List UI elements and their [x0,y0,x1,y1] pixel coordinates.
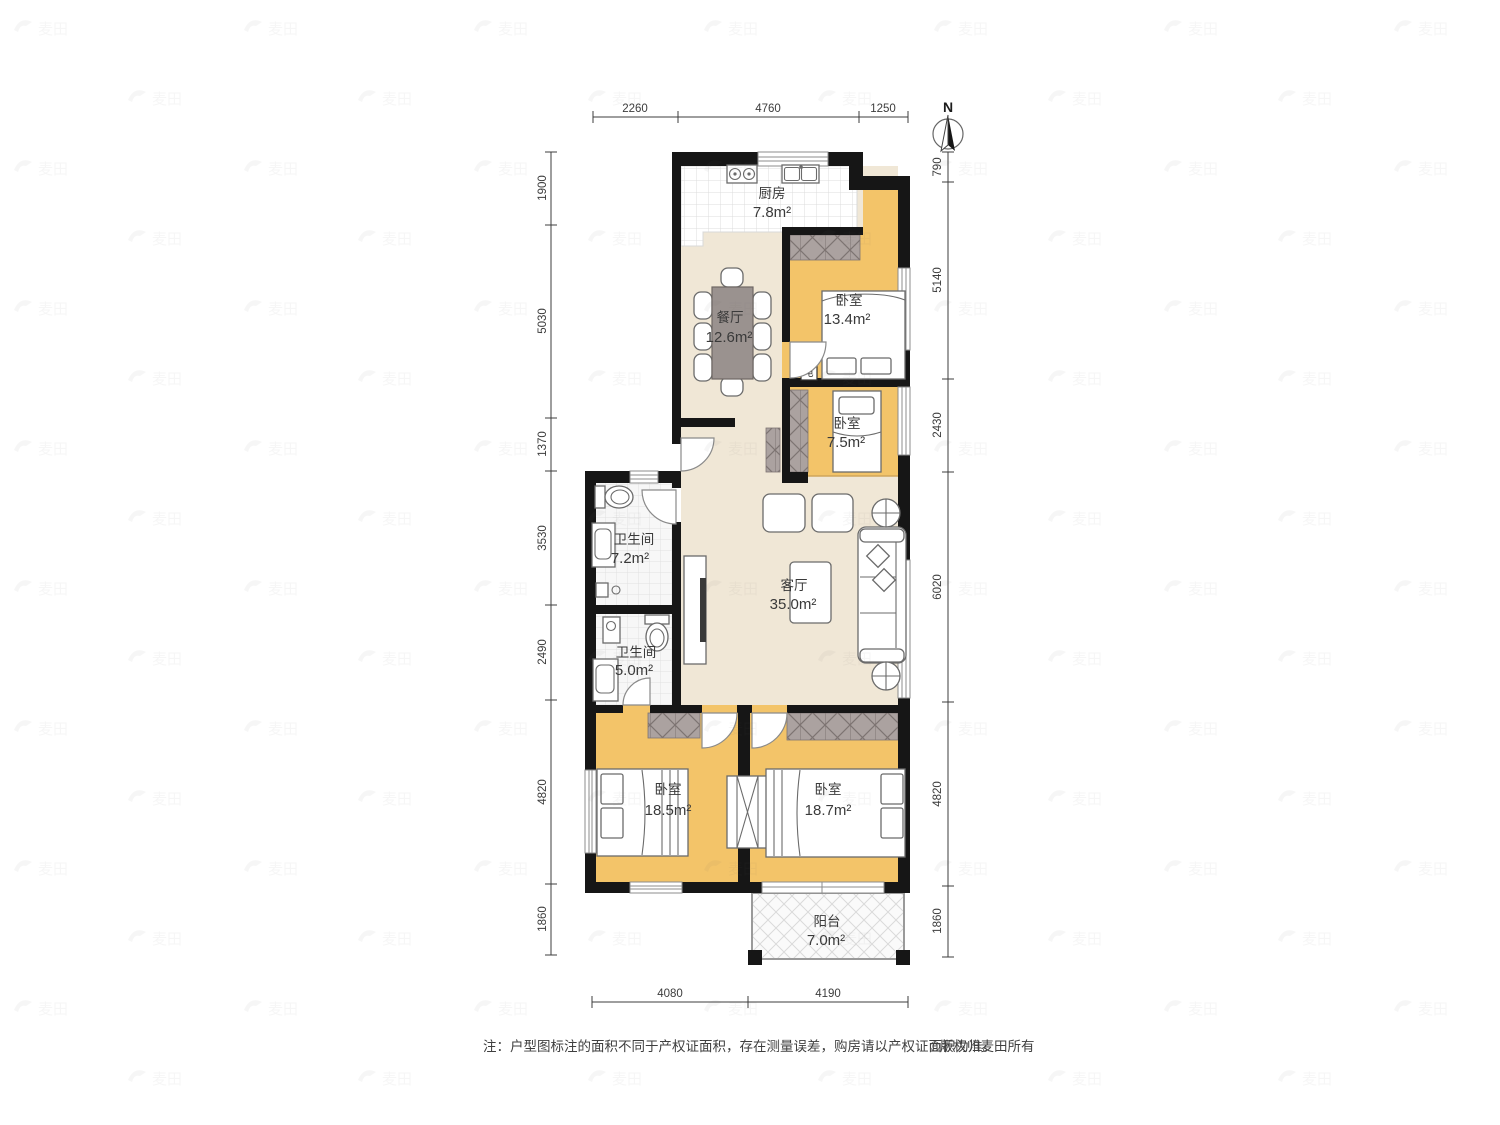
dresser-icon [727,776,768,848]
dim-label: 4080 [657,988,683,1000]
double-bed-icon [822,291,905,379]
tv-icon [700,578,706,642]
dim-label: 5030 [537,308,549,334]
room-balcony-label: 阳台 [814,914,841,929]
kitchen-sink-icon [782,165,819,183]
room-kitchen-area: 7.8m² [753,204,791,221]
window-icon [630,471,658,483]
room-kitchen-label: 厨房 [759,186,786,201]
room-bedroom-top-area: 13.4m² [824,311,871,328]
dim-label: 6020 [932,574,944,600]
room-bath-large-area: 7.2m² [611,550,649,567]
room-bedroom-top-label: 卧室 [836,292,863,308]
disclaimer-note: 注：户型图标注的面积不同于产权证面积，存在测量误差，购房请以产权证面积为准。 [483,1038,996,1054]
dim-label: 1860 [537,906,549,932]
sliding-door-icon [762,882,884,893]
tv-cabinet-icon [684,556,706,664]
dim-label: 1900 [537,175,549,201]
room-bedroom-small-label: 卧室 [834,415,861,431]
sofa-icon [858,527,906,663]
water-heater-icon [603,617,620,643]
dim-label: 2490 [537,639,549,665]
hall-cabinet-icon [766,428,780,472]
room-bedroom-right-area: 18.7m² [805,802,852,819]
dim-label: 4820 [932,781,944,807]
dim-label: 2430 [932,412,944,438]
dim-label: 4190 [815,988,841,1000]
dim-label: 2260 [622,103,648,115]
floorplan-canvas: 麦田 麦田 [0,0,1500,1125]
room-bath-small-area: 5.0m² [615,662,653,679]
window-icon [630,882,682,893]
wardrobe-icon [790,235,860,260]
dim-label: 1370 [537,431,549,457]
room-bedroom-right-label: 卧室 [815,781,842,797]
floorplan-page: 麦田 麦田 [0,0,1500,1125]
wardrobe-icon [648,713,700,738]
window-icon [585,770,596,853]
room-dining-area: 12.6m² [706,329,753,346]
window-icon [758,152,828,166]
wardrobe-icon [788,390,808,472]
dim-label: 1860 [932,908,944,934]
room-dining-label: 餐厅 [717,310,744,325]
room-bedroom-small-area: 7.5m² [827,434,865,451]
copyright-note: ©版权归麦田所有 [930,1038,1034,1054]
window-icon [898,387,910,455]
room-living-area: 35.0m² [770,596,817,613]
room-bedroom-left-label: 卧室 [655,781,682,797]
armchair-icon [812,494,853,532]
toilet-icon [595,486,633,508]
wardrobe-icon [787,713,898,740]
footer: 注：户型图标注的面积不同于产权证面积，存在测量误差，购房请以产权证面积为准。 ©… [483,1038,1034,1054]
room-bedroom-left-area: 18.5m² [645,802,692,819]
dim-label: 4820 [537,779,549,805]
side-table-icon [872,662,900,690]
dim-label: 1250 [870,103,896,115]
room-living-label: 客厅 [781,577,808,593]
single-bed-icon [833,391,881,472]
dim-label: 3530 [537,525,549,551]
room-bath-large-label: 卫生间 [614,532,655,547]
stove-icon [727,165,757,183]
dim-label: 790 [932,157,944,176]
room-bath-small-label: 卫生间 [616,645,657,660]
room-balcony-area: 7.0m² [807,932,845,949]
armchair-icon [763,494,805,532]
dim-label: 4760 [755,103,781,115]
dim-label: 5140 [932,267,944,293]
side-table-icon [872,499,900,527]
north-label: N [943,99,953,115]
